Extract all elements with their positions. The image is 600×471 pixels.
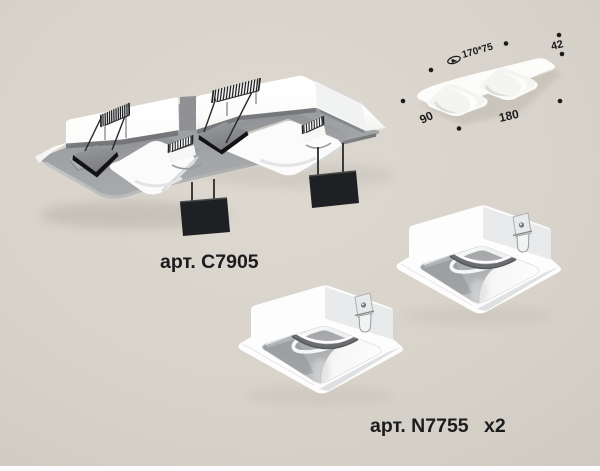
svg-text:арт. N7755: арт. N7755 [370,415,469,437]
svg-text:x2: x2 [484,415,506,437]
svg-text:арт. C7905: арт. C7905 [160,251,259,273]
